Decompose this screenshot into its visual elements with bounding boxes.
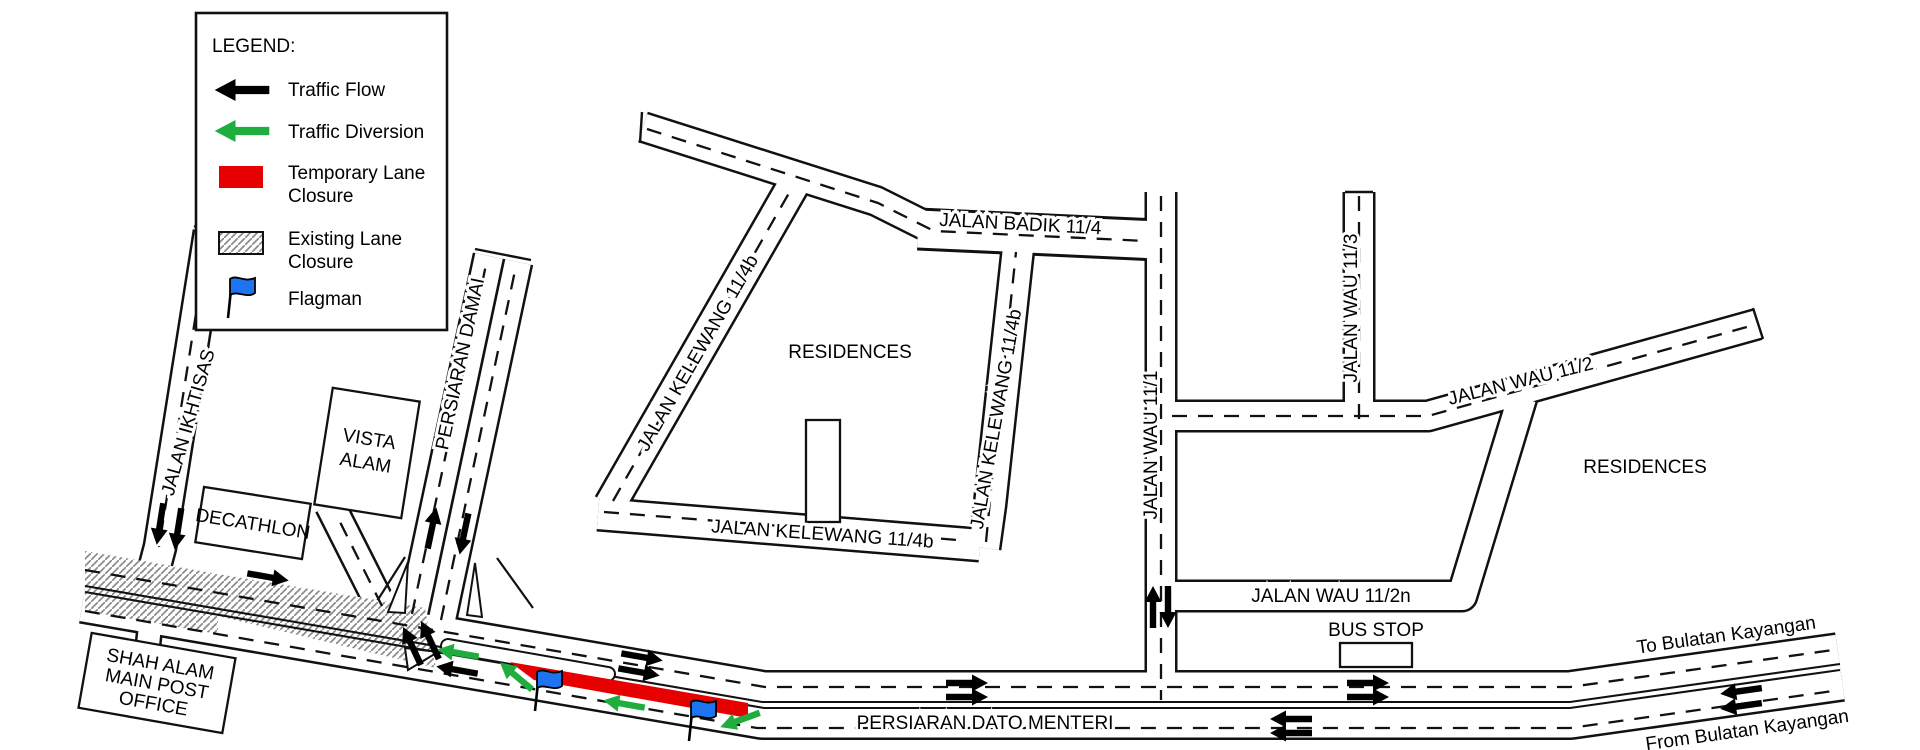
residences-west-label: RESIDENCES <box>788 342 912 363</box>
vista-alam-building: VISTA ALAM <box>314 388 419 518</box>
road-label-kelewang-west: JALAN KELEWANG 11/4b <box>633 252 763 455</box>
road-label-jalan-wau-11-2n: JALAN WAU 11/2n <box>1251 586 1410 607</box>
legend-item-label: Closure <box>288 252 353 273</box>
road-label-jalan-wau-11-3: JALAN WAU 11/3 <box>1341 234 1362 383</box>
red-swatch-icon <box>219 166 263 188</box>
road-label-persiaran-dato-menteri: PERSIARAN DATO MENTERI <box>857 713 1114 734</box>
decathlon-building: DECATHLON <box>191 486 314 559</box>
legend-item-label: Existing Lane <box>288 229 402 250</box>
legend-item-label: Closure <box>288 186 353 207</box>
bus-stop-shelter <box>1340 643 1412 667</box>
hatch-swatch-icon <box>219 232 263 254</box>
road-label-jalan-wau-11-1: JALAN WAU 11/1 <box>1141 371 1162 520</box>
legend: LEGEND: Traffic Flow Traffic Diversion T… <box>196 13 447 330</box>
post-office-building: SHAH ALAM MAIN POST OFFICE <box>79 633 236 733</box>
legend-title: LEGEND: <box>212 36 295 57</box>
legend-item-label: Temporary Lane <box>288 163 425 184</box>
legend-item-label: Traffic Flow <box>288 80 385 101</box>
residences-driveway-notch <box>806 420 840 522</box>
bus-stop-label: BUS STOP <box>1328 620 1424 641</box>
legend-item-label: Flagman <box>288 289 362 310</box>
traffic-diversion-map: VISTA ALAM DECATHLON SHAH ALAM MAIN POST… <box>0 0 1920 750</box>
legend-item-label: Traffic Diversion <box>288 122 424 143</box>
map-canvas: VISTA ALAM DECATHLON SHAH ALAM MAIN POST… <box>0 0 1920 750</box>
residences-east-label: RESIDENCES <box>1583 457 1707 478</box>
